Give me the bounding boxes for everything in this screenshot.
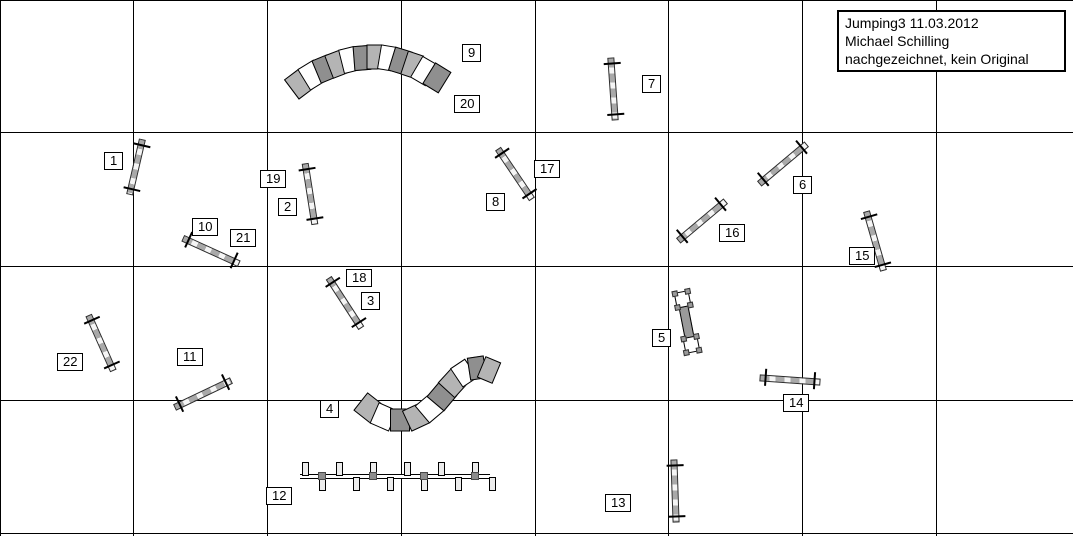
obstacle-number-label-16: 16 [719, 224, 745, 242]
obstacle-number-label-13: 13 [605, 494, 631, 512]
jump-obstacle-2-19 [302, 163, 319, 225]
weave-pole [336, 462, 343, 476]
jump-obstacle-14 [759, 374, 820, 385]
weave-pole [387, 477, 394, 491]
wall-block-nub [683, 349, 690, 356]
obstacle-number-label-14: 14 [783, 394, 809, 412]
wall-block-nub [671, 290, 678, 297]
jump-wing-bar [667, 464, 684, 467]
weave-pole [353, 477, 360, 491]
grid-line-vertical [0, 0, 1, 536]
obstacle-number-label-10: 10 [192, 218, 218, 236]
agility-course-field: Jumping3 11.03.2012 Michael Schilling na… [0, 0, 1073, 536]
obstacle-number-label-18: 18 [346, 269, 372, 287]
jump-obstacle-22 [85, 314, 116, 373]
jump-wing-bar [306, 216, 323, 221]
obstacle-number-label-1: 1 [104, 152, 123, 170]
obstacle-number-label-20: 20 [454, 95, 480, 113]
weave-pole [489, 477, 496, 491]
jump-obstacle-7 [607, 57, 618, 120]
weave-knob [318, 472, 326, 480]
jump-wing-bar [668, 515, 685, 518]
jump-wing-bar [604, 62, 621, 65]
jump-wing-bar [134, 142, 151, 148]
obstacle-number-label-2: 2 [278, 198, 297, 216]
course-author: Michael Schilling [845, 32, 1058, 50]
obstacle-number-label-4: 4 [320, 400, 339, 418]
grid-line-vertical [802, 0, 803, 536]
weave-pole [404, 462, 411, 476]
course-info-box: Jumping3 11.03.2012 Michael Schilling na… [837, 10, 1066, 72]
grid-line-vertical [133, 0, 134, 536]
grid-line-horizontal [0, 266, 1073, 267]
jump-wing-bar [714, 197, 726, 211]
wall-block-nub [674, 304, 681, 311]
jump-obstacle-11 [173, 377, 233, 410]
grid-line-vertical [401, 0, 402, 536]
jump-wing-bar [495, 148, 510, 159]
jump-wing-bar [299, 167, 316, 172]
jump-wing-bar [84, 316, 100, 325]
jump-wing-bar [757, 172, 769, 186]
obstacle-number-label-19: 19 [260, 170, 286, 188]
jump-wing-bar [221, 374, 230, 390]
weave-knob [369, 472, 377, 480]
jump-wing-bar [325, 277, 340, 288]
obstacle-number-label-8: 8 [486, 193, 505, 211]
obstacle-number-label-21: 21 [230, 229, 256, 247]
wall-block-nub [693, 333, 700, 340]
obstacle-number-label-17: 17 [534, 160, 560, 178]
weave-pole [302, 462, 309, 476]
obstacle-number-label-5: 5 [652, 329, 671, 347]
grid-line-vertical [668, 0, 669, 536]
grid-line-horizontal [0, 0, 1073, 1]
jump-wing-bar [175, 396, 184, 412]
grid-line-horizontal [0, 132, 1073, 133]
grid-line-vertical [535, 0, 536, 536]
obstacle-number-label-11: 11 [177, 348, 203, 366]
jump-wing-bar [874, 261, 891, 268]
jump-obstacle-1 [126, 138, 146, 195]
weave-pole [455, 477, 462, 491]
obstacle-number-label-6: 6 [793, 176, 812, 194]
weave-pole [438, 462, 445, 476]
jump-wing-bar [795, 140, 807, 154]
jump-wing-bar [104, 361, 120, 370]
obstacle-number-label-22: 22 [57, 353, 83, 371]
wall-block-nub [684, 288, 691, 295]
jump-wing-bar [676, 229, 688, 243]
wall-end-block [674, 290, 692, 309]
obstacle-number-label-3: 3 [361, 292, 380, 310]
obstacle-number-label-12: 12 [266, 487, 292, 505]
wall-block-nub [696, 347, 703, 354]
grid-line-vertical [267, 0, 268, 536]
weave-knob [420, 472, 428, 480]
jump-wing-bar [764, 369, 767, 386]
grid-line-horizontal [0, 533, 1073, 534]
course-note: nachgezeichnet, kein Original [845, 50, 1058, 68]
jump-wing-bar [607, 113, 624, 116]
grid-line-vertical [936, 0, 937, 536]
wall-block-nub [687, 302, 694, 309]
grid-line-horizontal [0, 400, 1073, 401]
jump-wing-bar [813, 372, 816, 389]
wall-end-block [682, 335, 700, 354]
course-title: Jumping3 11.03.2012 [845, 14, 1058, 32]
wall-obstacle-5 [676, 295, 699, 349]
obstacle-number-label-15: 15 [849, 247, 875, 265]
jump-wing-bar [351, 317, 366, 328]
jump-obstacle-13 [670, 459, 679, 522]
obstacle-number-label-7: 7 [642, 75, 661, 93]
jump-wing-bar [123, 186, 140, 192]
wall-block-nub [680, 335, 687, 342]
jump-wing-bar [861, 213, 878, 220]
weave-knob [471, 472, 479, 480]
obstacle-number-label-9: 9 [462, 44, 481, 62]
